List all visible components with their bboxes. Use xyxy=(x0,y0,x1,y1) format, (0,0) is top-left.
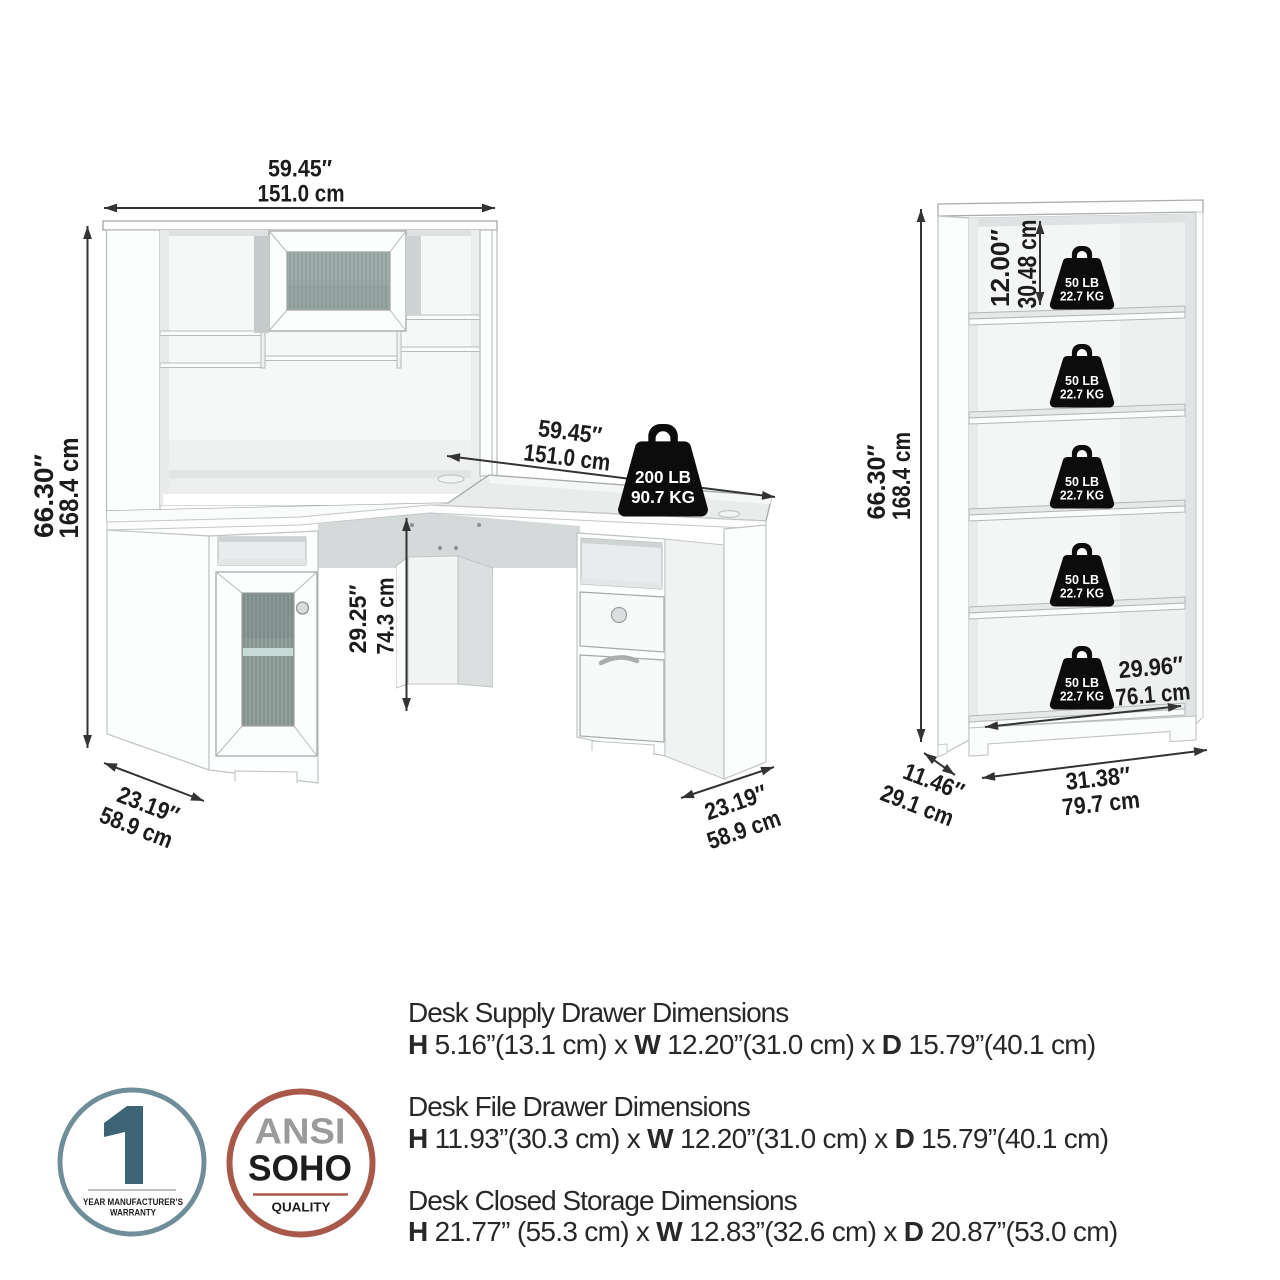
svg-text:22.7 KG: 22.7 KG xyxy=(1060,387,1104,402)
svg-text:59.45″: 59.45″ xyxy=(268,156,332,183)
svg-text:151.0 cm: 151.0 cm xyxy=(258,181,345,208)
svg-text:168.4 cm: 168.4 cm xyxy=(54,438,84,539)
svg-text:H 5.16”(13.1 cm) x W 12.20”(31: H 5.16”(13.1 cm) x W 12.20”(31.0 cm) x D… xyxy=(408,1029,1096,1060)
svg-text:66.30″: 66.30″ xyxy=(863,444,891,519)
svg-text:22.7 KG: 22.7 KG xyxy=(1060,289,1104,304)
svg-text:Desk Supply Drawer Dimensions: Desk Supply Drawer Dimensions xyxy=(408,997,788,1028)
svg-text:90.7 KG: 90.7 KG xyxy=(631,487,695,507)
svg-text:H 21.77” (55.3 cm) x W 12.83”: H 21.77” (55.3 cm) x W 12.83”(32.6 cm) x… xyxy=(408,1216,1117,1247)
svg-text:74.3 cm: 74.3 cm xyxy=(373,578,400,655)
svg-text:WARRANTY: WARRANTY xyxy=(110,1208,156,1218)
svg-text:Desk File Drawer Dimensions: Desk File Drawer Dimensions xyxy=(408,1091,750,1122)
svg-text:ANSI: ANSI xyxy=(255,1111,346,1152)
svg-text:168.4 cm: 168.4 cm xyxy=(888,432,916,520)
svg-text:22.7 KG: 22.7 KG xyxy=(1060,689,1104,704)
svg-text:22.7 KG: 22.7 KG xyxy=(1060,488,1104,503)
svg-text:QUALITY: QUALITY xyxy=(272,1201,332,1215)
svg-text:YEAR MANUFACTURER’S: YEAR MANUFACTURER’S xyxy=(83,1197,183,1207)
svg-text:22.7 KG: 22.7 KG xyxy=(1060,586,1104,601)
svg-text:H 11.93”(30.3 cm) x W 12.20”(3: H 11.93”(30.3 cm) x W 12.20”(31.0 cm) x … xyxy=(408,1123,1108,1154)
svg-text:200 LB: 200 LB xyxy=(635,467,691,487)
svg-text:29.25″: 29.25″ xyxy=(345,584,372,653)
svg-text:12.00″: 12.00″ xyxy=(985,229,1015,307)
svg-text:SOHO: SOHO xyxy=(248,1148,352,1189)
svg-text:Desk Closed Storage Dimensions: Desk Closed Storage Dimensions xyxy=(408,1185,797,1216)
